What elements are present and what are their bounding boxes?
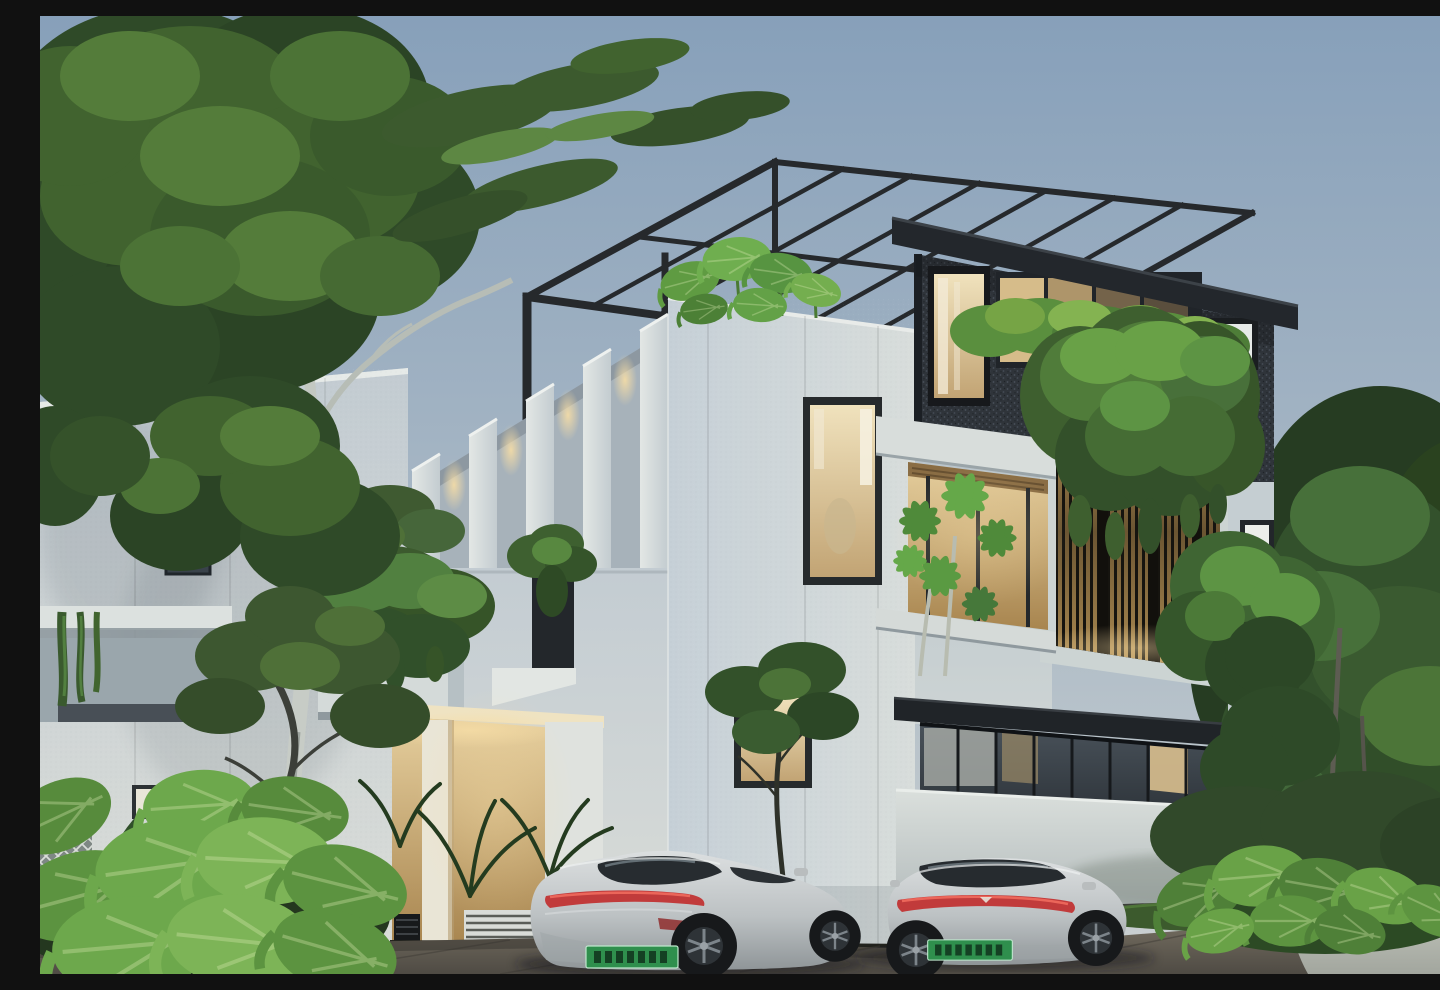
vent-grilles xyxy=(394,910,536,942)
architectural-rendering-photo: Modern villa exterior at dusk xyxy=(40,16,1440,974)
tall-frosted-window xyxy=(803,397,882,585)
license-plate-right xyxy=(928,940,1013,960)
cantilever-slab xyxy=(40,606,232,630)
elephant-ear-shrubs-right xyxy=(1143,771,1440,961)
license-plate-left xyxy=(586,946,678,968)
car-left-front-wheel xyxy=(809,910,860,961)
